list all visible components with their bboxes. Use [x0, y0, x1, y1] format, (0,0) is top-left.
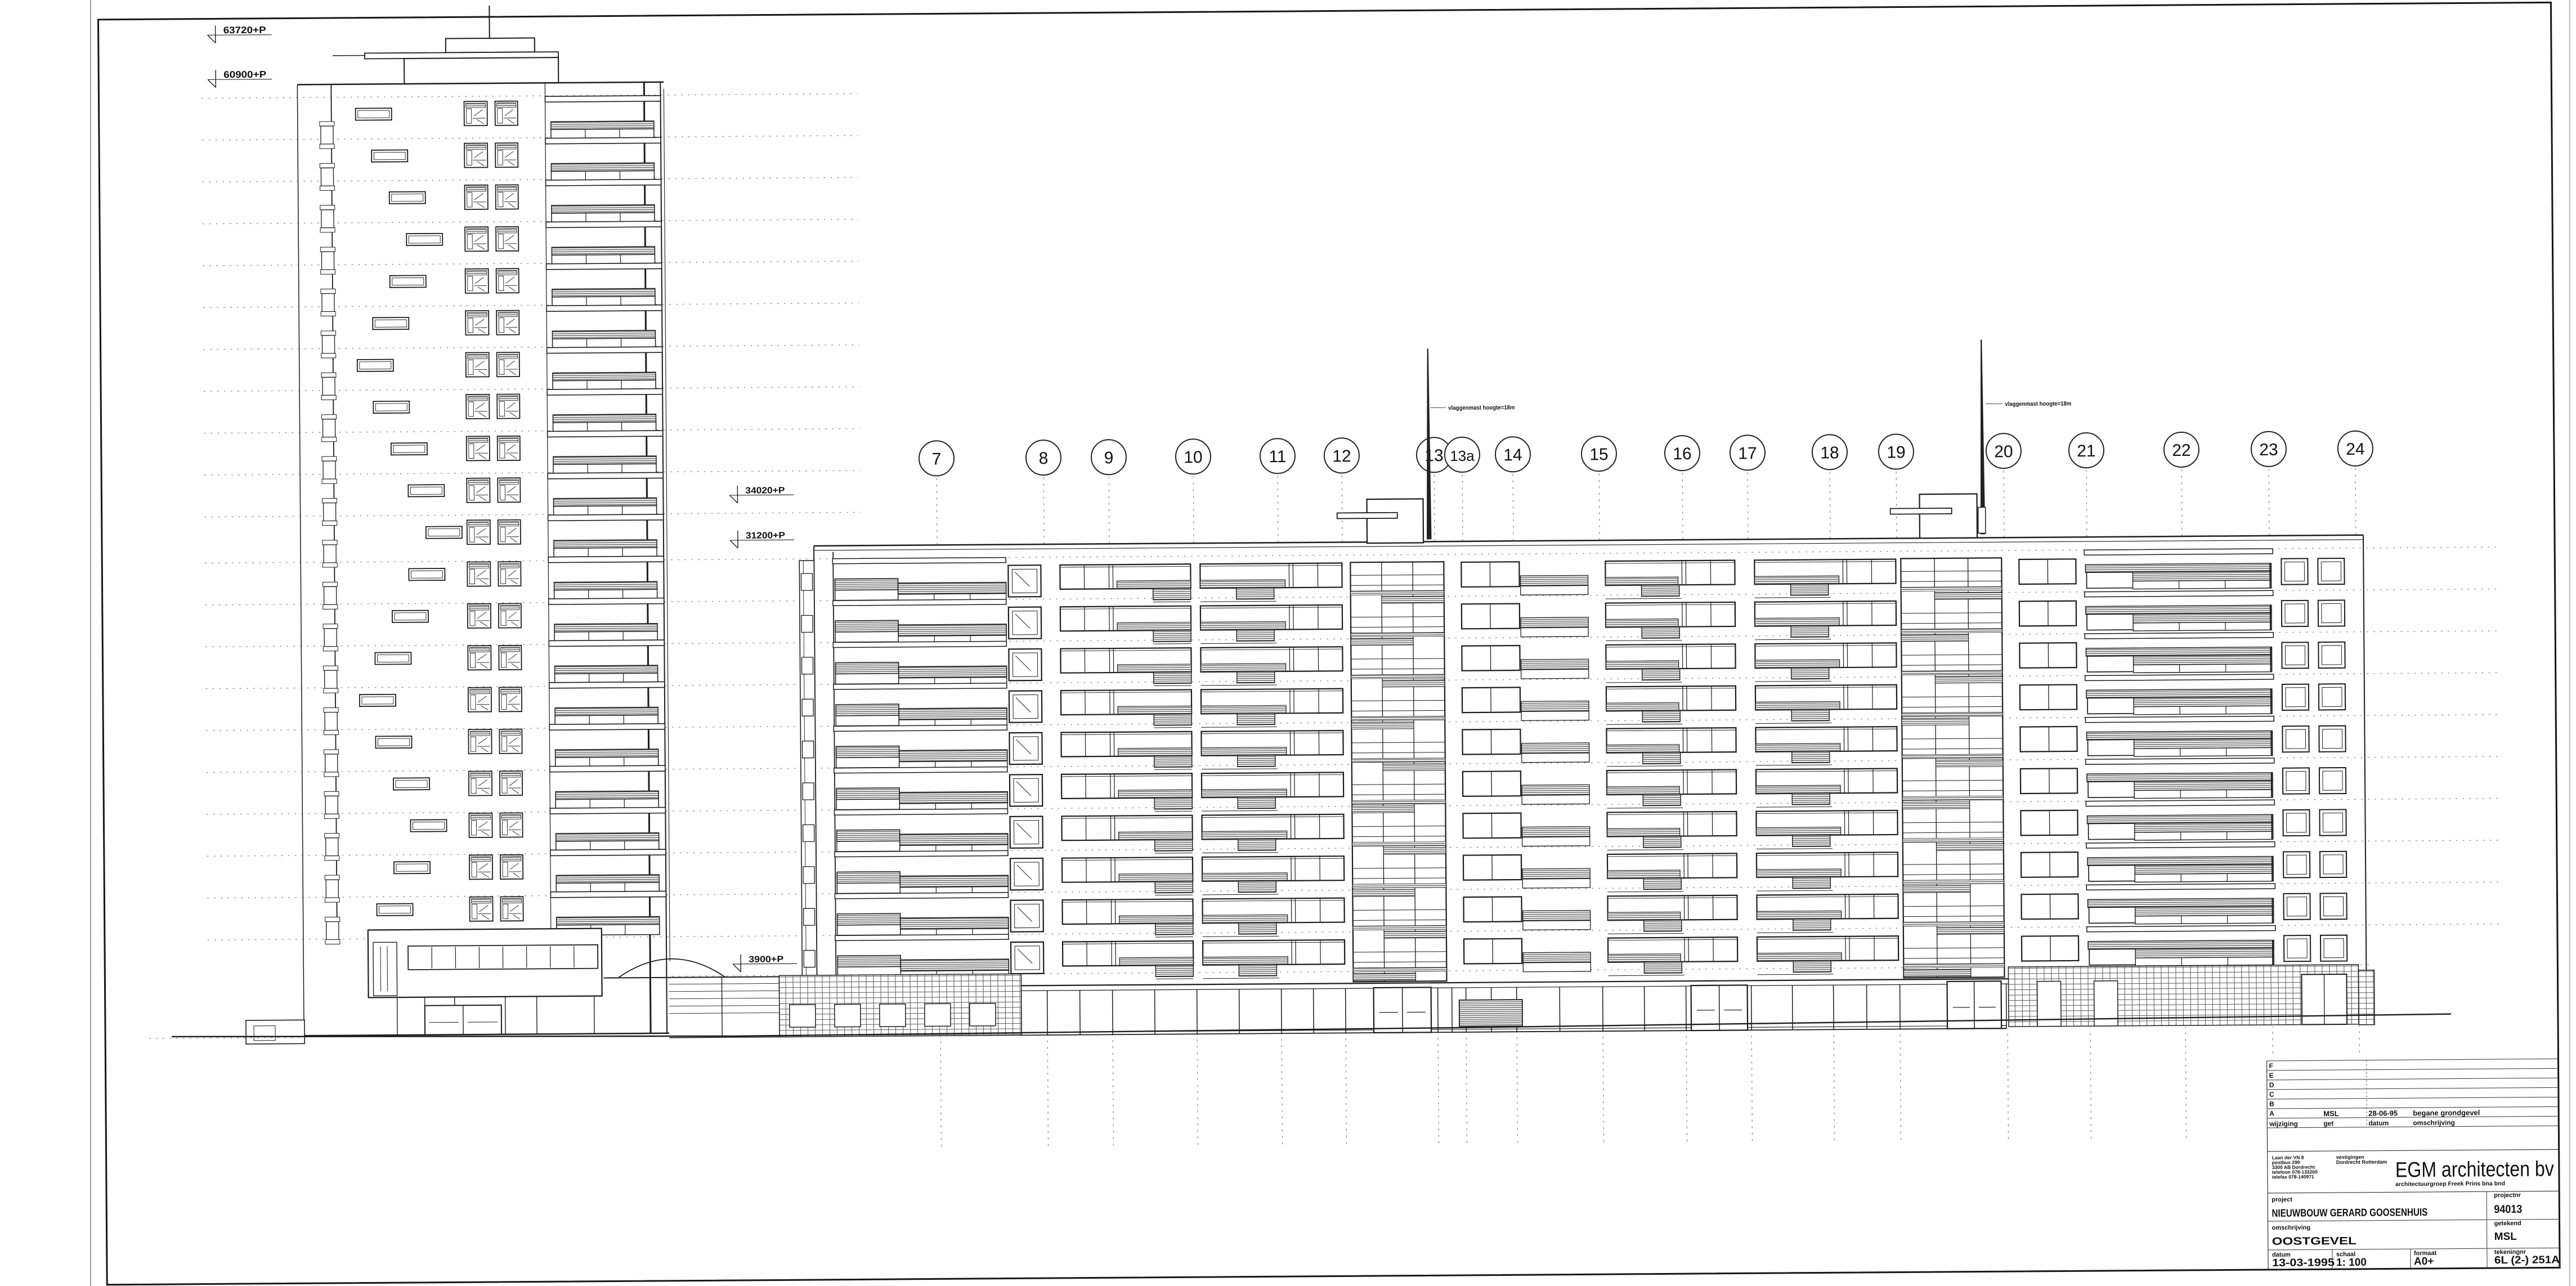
svg-text:vlaggenmast hoogte=18m: vlaggenmast hoogte=18m — [1448, 404, 1515, 411]
svg-text:EGM architecten bv: EGM architecten bv — [2395, 1157, 2554, 1182]
svg-text:18: 18 — [1820, 443, 1839, 462]
svg-text:MSL: MSL — [2323, 1109, 2339, 1118]
svg-text:8: 8 — [1039, 449, 1049, 468]
svg-text:19: 19 — [1887, 443, 1906, 461]
svg-text:60900+P: 60900+P — [223, 69, 266, 80]
svg-text:9: 9 — [1104, 449, 1114, 467]
svg-text:22: 22 — [2172, 441, 2191, 460]
svg-text:1: 100: 1: 100 — [2336, 1257, 2367, 1269]
svg-text:MSL: MSL — [2494, 1231, 2517, 1243]
svg-text:28-06-95: 28-06-95 — [2368, 1109, 2398, 1117]
svg-text:telefax 078-140971: telefax 078-140971 — [2272, 1174, 2314, 1180]
svg-text:14: 14 — [1503, 446, 1522, 464]
svg-text:24: 24 — [2346, 440, 2365, 459]
svg-text:13a: 13a — [1450, 447, 1475, 464]
svg-text:15: 15 — [1589, 445, 1609, 464]
svg-text:OOSTGEVEL: OOSTGEVEL — [2272, 1235, 2357, 1248]
svg-text:10: 10 — [1184, 448, 1203, 467]
svg-text:D: D — [2269, 1081, 2274, 1089]
svg-text:NIEUWBOUW GERARD GOOSENHUIS: NIEUWBOUW GERARD GOOSENHUIS — [2272, 1207, 2427, 1220]
svg-text:datum: datum — [2368, 1119, 2389, 1127]
svg-text:63720+P: 63720+P — [223, 25, 266, 36]
svg-text:94013: 94013 — [2494, 1203, 2522, 1216]
svg-text:3900+P: 3900+P — [749, 955, 783, 964]
svg-text:F: F — [2269, 1062, 2273, 1070]
svg-text:get: get — [2323, 1119, 2333, 1127]
svg-text:vlaggenmast hoogte=18m: vlaggenmast hoogte=18m — [2005, 400, 2071, 407]
svg-text:23: 23 — [2259, 441, 2278, 459]
svg-text:34020+P: 34020+P — [745, 486, 785, 495]
svg-text:31200+P: 31200+P — [746, 531, 785, 540]
svg-text:13-03-1995: 13-03-1995 — [2272, 1257, 2335, 1269]
svg-text:6L (2-) 251A: 6L (2-) 251A — [2494, 1254, 2560, 1266]
svg-text:Dordrecht Rotterdam: Dordrecht Rotterdam — [2336, 1159, 2387, 1165]
svg-text:B: B — [2269, 1100, 2274, 1108]
svg-text:omschrijving: omschrijving — [2413, 1119, 2455, 1127]
svg-text:getekend: getekend — [2494, 1220, 2521, 1227]
svg-text:A0+: A0+ — [2414, 1256, 2434, 1267]
svg-text:wijziging: wijziging — [2269, 1120, 2298, 1128]
svg-text:7: 7 — [932, 450, 942, 468]
svg-text:17: 17 — [1738, 444, 1757, 463]
svg-text:20: 20 — [1994, 442, 2013, 461]
svg-text:11: 11 — [1269, 447, 1286, 466]
svg-text:A: A — [2269, 1109, 2274, 1117]
svg-text:16: 16 — [1673, 445, 1692, 463]
svg-text:project: project — [2272, 1197, 2292, 1203]
svg-text:begane grondgevel: begane grondgevel — [2413, 1108, 2480, 1117]
svg-text:projectnr: projectnr — [2494, 1192, 2521, 1199]
svg-text:21: 21 — [2077, 442, 2096, 460]
svg-text:12: 12 — [1332, 447, 1351, 465]
svg-text:architectuurgroep Freek Prins: architectuurgroep Freek Prins bna bnd — [2395, 1180, 2505, 1188]
svg-text:omschrijving: omschrijving — [2272, 1224, 2311, 1231]
svg-text:C: C — [2269, 1091, 2274, 1099]
svg-text:E: E — [2269, 1072, 2274, 1079]
